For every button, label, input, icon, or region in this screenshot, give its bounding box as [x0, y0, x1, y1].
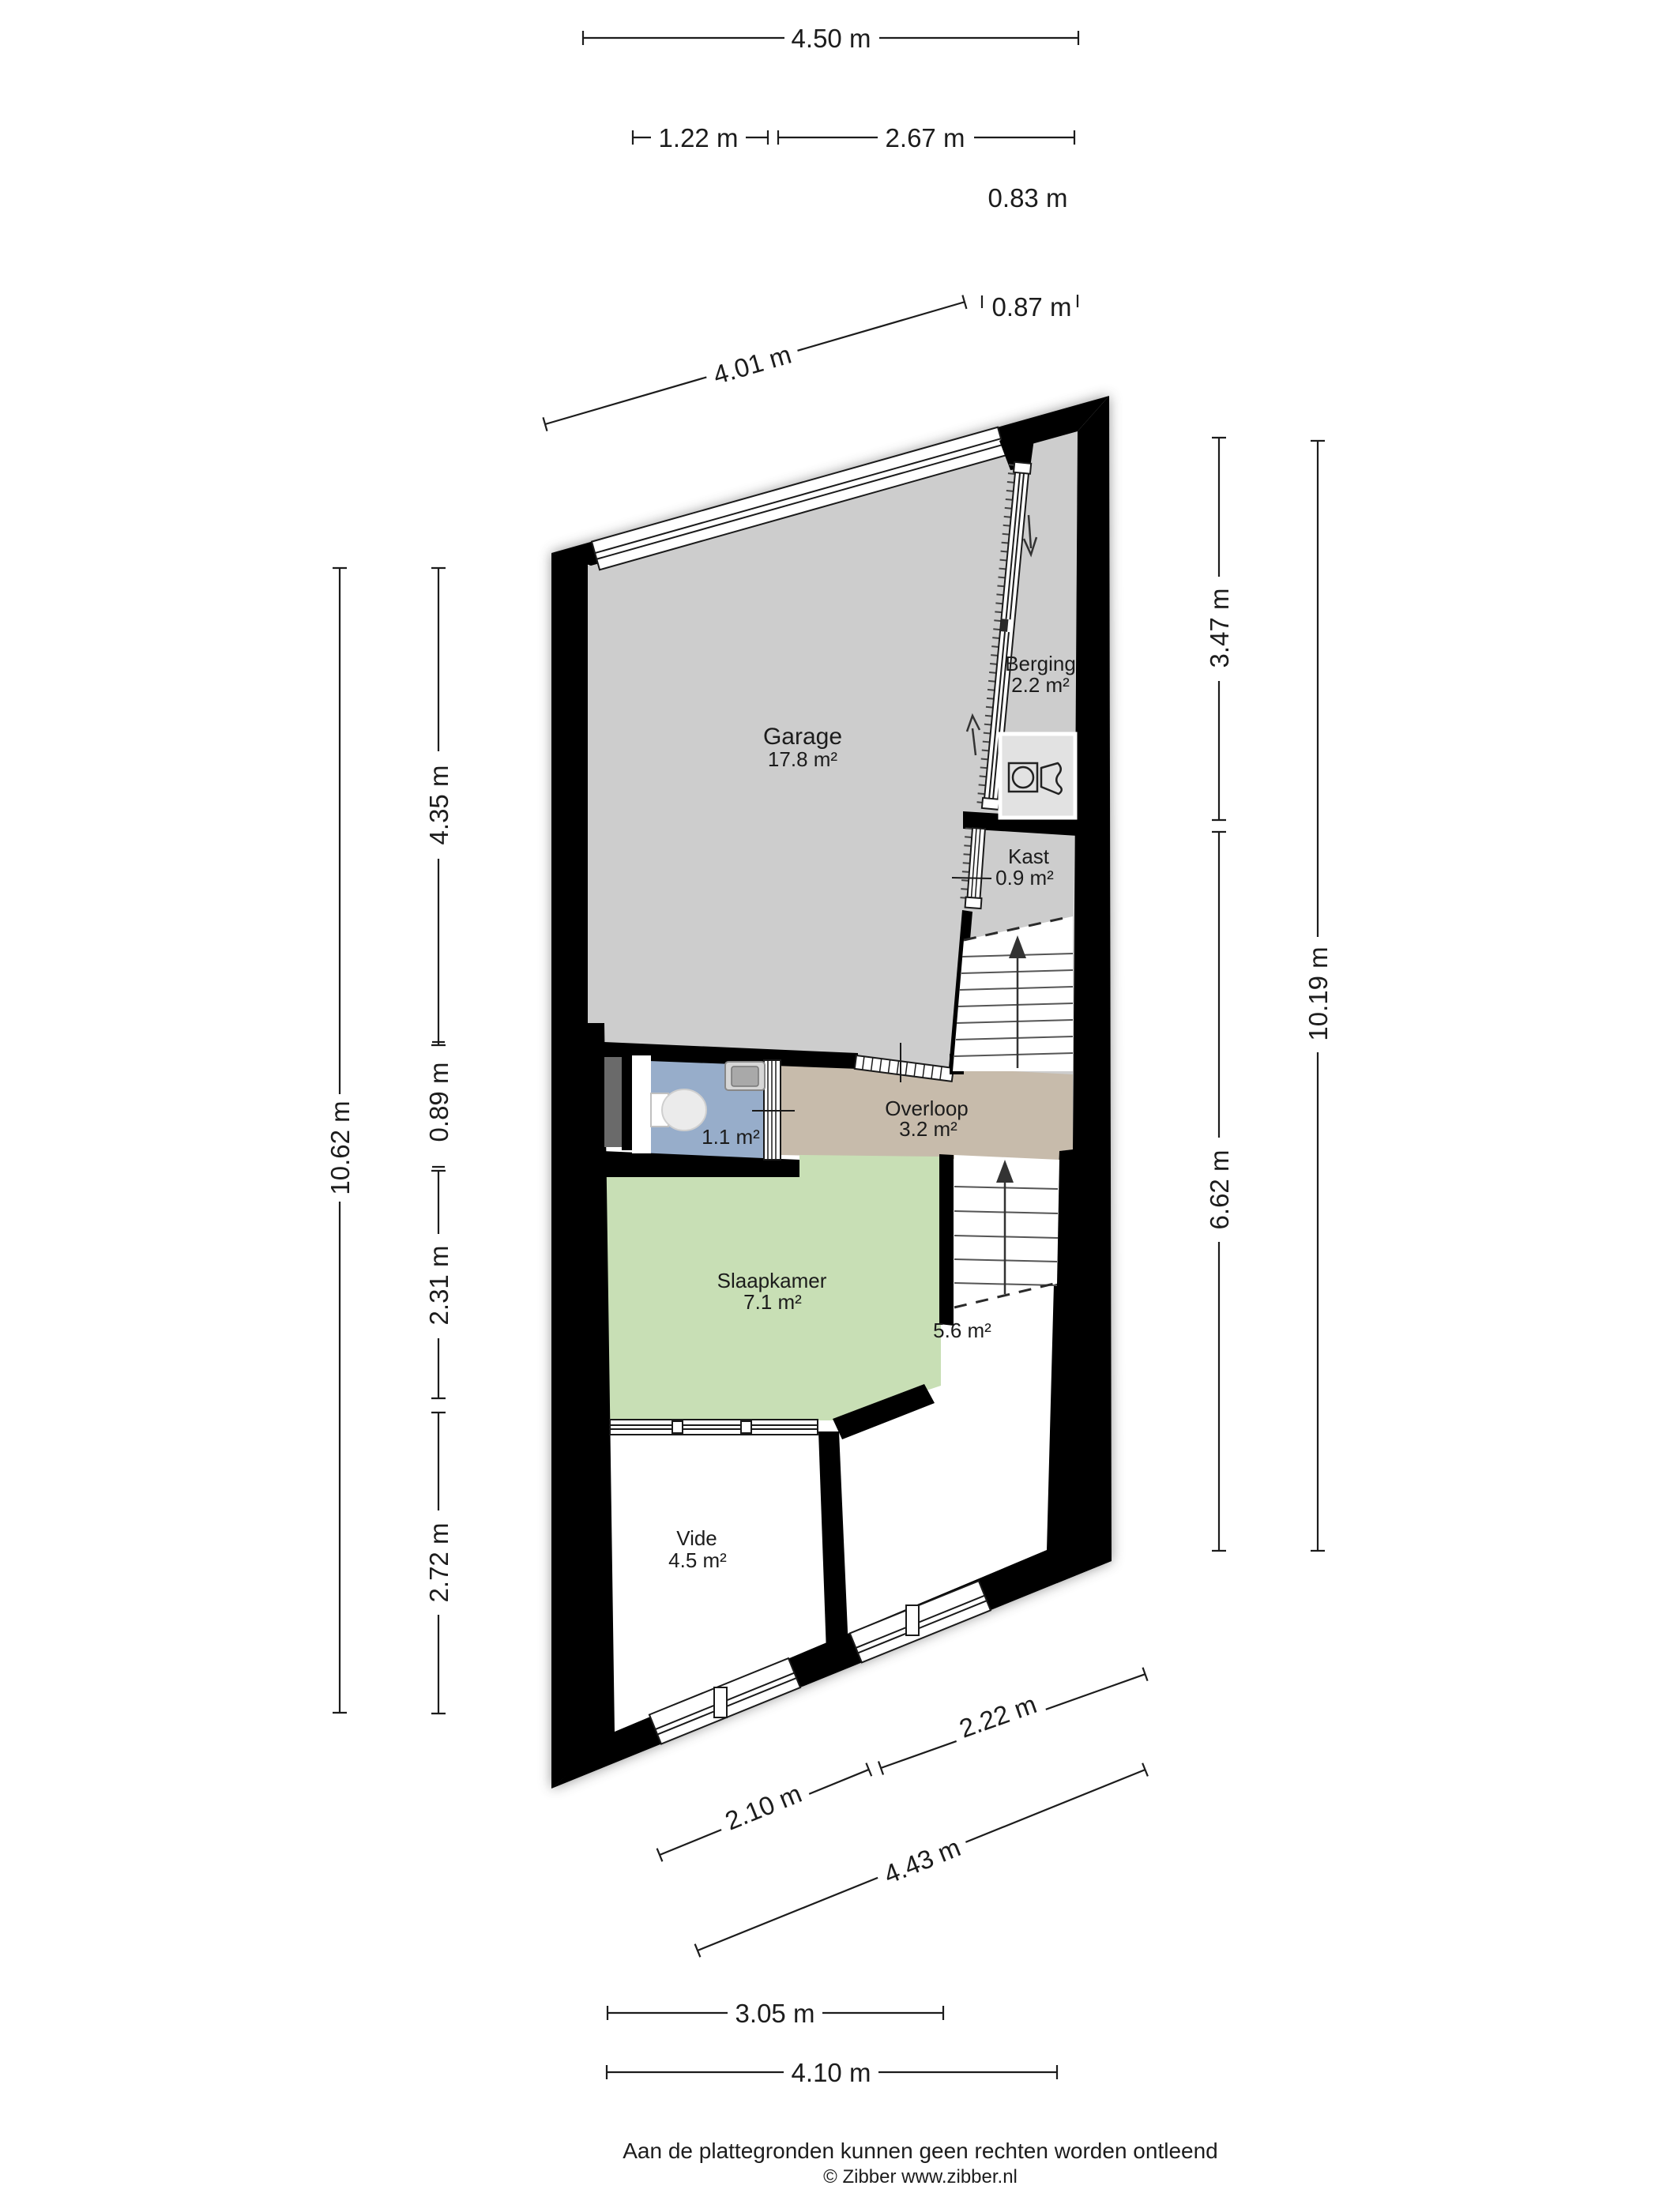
- svg-text:Vide: Vide: [676, 1526, 717, 1550]
- svg-text:© Zibber www.zibber.nl: © Zibber www.zibber.nl: [823, 2166, 1018, 2188]
- svg-text:4.10 m: 4.10 m: [792, 2058, 871, 2087]
- svg-text:4.5 m²: 4.5 m²: [668, 1548, 727, 1572]
- svg-text:Aan de plattegronden kunnen ge: Aan de plattegronden kunnen geen rechten…: [623, 2139, 1217, 2163]
- svg-text:17.8 m²: 17.8 m²: [768, 747, 837, 771]
- svg-text:Berging: Berging: [1005, 652, 1076, 675]
- svg-text:2.67 m: 2.67 m: [886, 123, 965, 152]
- svg-text:1.22 m: 1.22 m: [659, 123, 739, 152]
- svg-text:3.05 m: 3.05 m: [735, 1999, 815, 2028]
- svg-text:1.1 m²: 1.1 m²: [702, 1125, 760, 1149]
- svg-text:4.50 m: 4.50 m: [792, 24, 871, 53]
- svg-text:0.89 m: 0.89 m: [424, 1063, 453, 1142]
- svg-text:0.83 m: 0.83 m: [988, 183, 1068, 213]
- svg-text:2.72 m: 2.72 m: [424, 1523, 453, 1603]
- svg-text:0.87 m: 0.87 m: [992, 292, 1072, 322]
- svg-text:0.9 m²: 0.9 m²: [995, 866, 1054, 890]
- svg-text:Garage: Garage: [763, 724, 842, 750]
- svg-text:5.6 m²: 5.6 m²: [933, 1319, 991, 1342]
- svg-text:6.62 m: 6.62 m: [1205, 1150, 1234, 1230]
- svg-text:10.62 m: 10.62 m: [325, 1100, 355, 1194]
- svg-text:2.2 m²: 2.2 m²: [1011, 673, 1070, 697]
- svg-text:4.35 m: 4.35 m: [424, 766, 453, 845]
- svg-text:10.19 m: 10.19 m: [1303, 946, 1333, 1040]
- svg-text:Kast: Kast: [1008, 845, 1050, 868]
- svg-text:Slaapkamer: Slaapkamer: [717, 1269, 827, 1292]
- svg-text:3.2 m²: 3.2 m²: [899, 1117, 957, 1141]
- svg-text:3.47 m: 3.47 m: [1205, 589, 1234, 668]
- svg-text:2.31 m: 2.31 m: [424, 1246, 453, 1326]
- svg-text:7.1 m²: 7.1 m²: [743, 1290, 802, 1314]
